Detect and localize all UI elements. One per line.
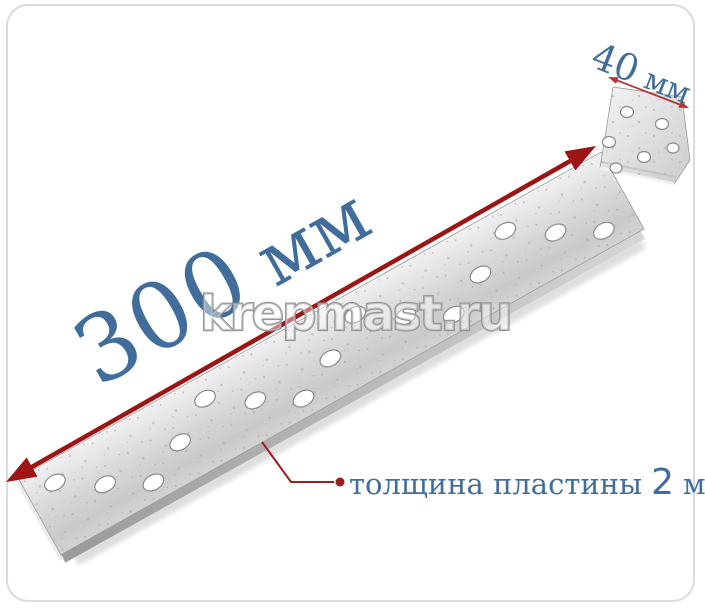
- flange-hole: [667, 143, 679, 153]
- flange-hole: [610, 163, 622, 173]
- thickness-label-text: толщина пластины: [349, 467, 642, 501]
- flange-hole: [638, 152, 651, 163]
- thickness-unit: мм: [683, 467, 705, 501]
- length-unit: мм: [242, 172, 385, 304]
- thickness-label: толщина пластины2мм: [349, 462, 705, 503]
- product-card: 300мм 40мм толщина пластины2мм krepmast.…: [0, 0, 705, 616]
- width-value: 40: [586, 34, 646, 91]
- thickness-callout: толщина пластины2мм: [262, 442, 705, 503]
- flange-hole: [656, 119, 669, 130]
- thickness-leader-dot: [336, 478, 345, 487]
- flange-hole: [621, 107, 634, 118]
- product-image: 300мм 40мм толщина пластины2мм krepmast.…: [0, 0, 705, 616]
- thickness-value: 2: [651, 462, 674, 503]
- watermark-text: krepmast.ru: [200, 286, 511, 342]
- flange-hole: [603, 137, 616, 148]
